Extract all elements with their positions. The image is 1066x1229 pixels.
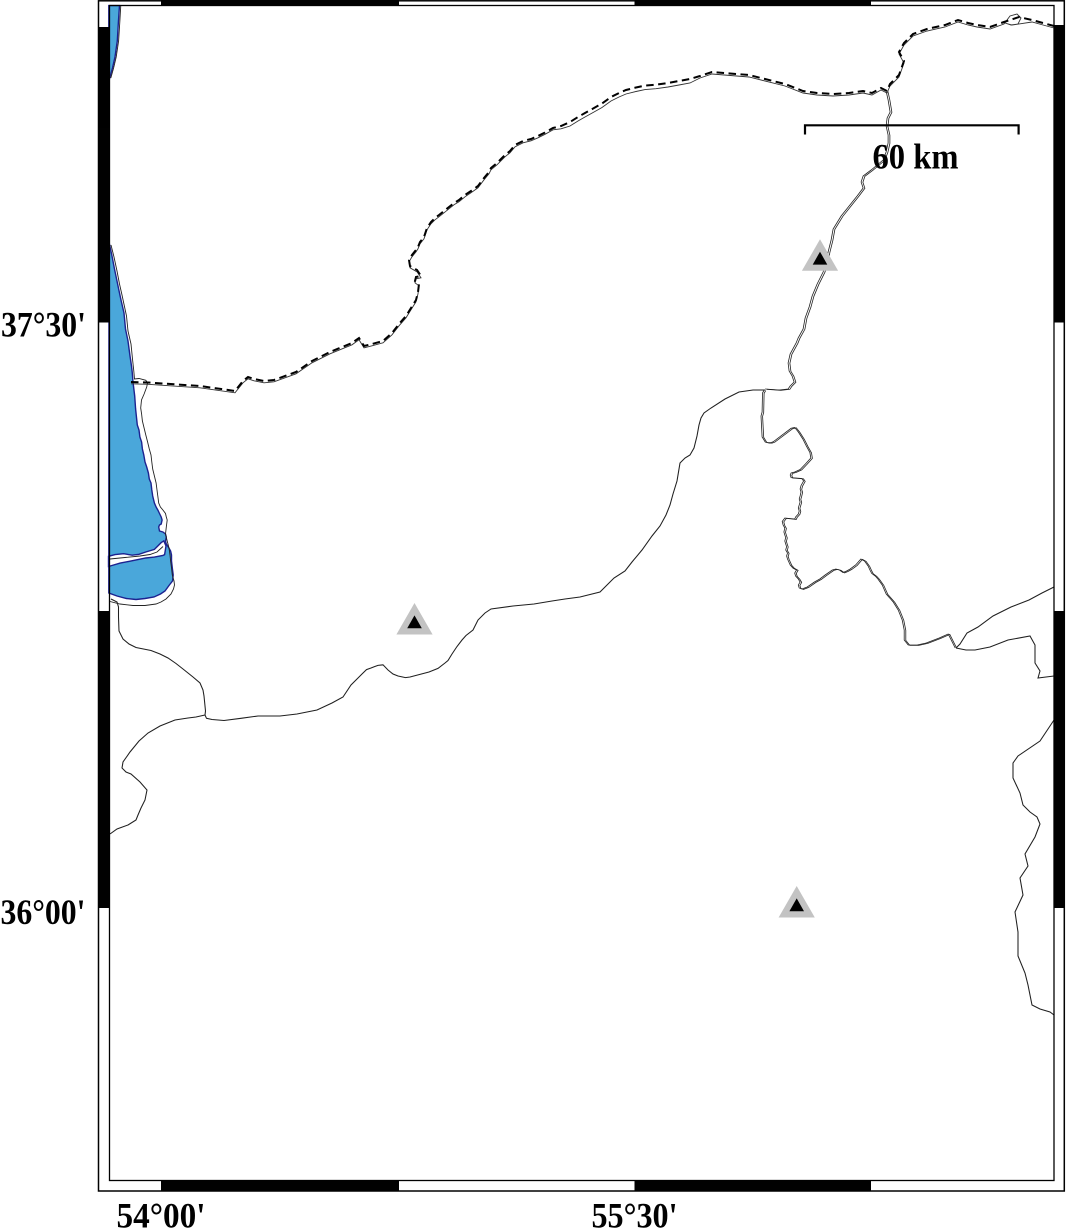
svg-text:36°00': 36°00' — [1, 892, 86, 932]
svg-text:37°30': 37°30' — [1, 305, 86, 345]
svg-text:54°00': 54°00' — [117, 1196, 206, 1229]
svg-text:55°30': 55°30' — [592, 1196, 678, 1229]
svg-text:60 km: 60 km — [873, 137, 959, 177]
